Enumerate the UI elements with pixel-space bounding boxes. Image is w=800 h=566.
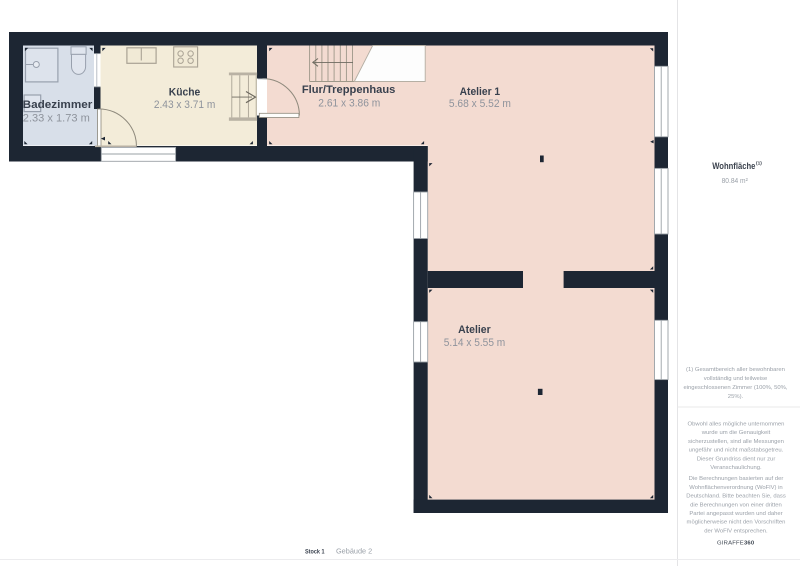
svg-text:vollständig und teilweise: vollständig und teilweise [704,376,768,382]
svg-text:wurde um die Genauigkeit: wurde um die Genauigkeit [701,430,771,436]
svg-text:möglicherweise nicht den Vorsc: möglicherweise nicht den Vorschriften [687,520,786,526]
svg-text:Atelier: Atelier [458,324,491,336]
svg-text:2.43 x 3.71 m: 2.43 x 3.71 m [154,99,216,111]
svg-text:Küche: Küche [169,87,201,99]
svg-text:(1): (1) [756,160,762,166]
svg-text:der WoFlV entsprechen.: der WoFlV entsprechen. [704,528,768,534]
svg-text:eingeschlossenen Zimmer (100%,: eingeschlossenen Zimmer (100%, 50%, [683,385,787,391]
svg-text:Veranschaulichung.: Veranschaulichung. [710,465,762,471]
svg-text:80.84 m²: 80.84 m² [722,176,749,185]
svg-text:25%).: 25%). [728,394,744,400]
svg-text:Atelier 1: Atelier 1 [460,86,501,98]
svg-text:(1) Gesamtbereich aller bewohn: (1) Gesamtbereich aller bewohnbaren [686,367,785,373]
svg-text:sicherzustellen, sind alle Mes: sicherzustellen, sind alle Messungen [688,439,784,445]
svg-text:Die Berechnungen basierten auf: Die Berechnungen basierten auf der [689,476,784,482]
svg-text:5.14 x 5.55 m: 5.14 x 5.55 m [444,337,506,349]
svg-text:Wohnflächenverordnung (WoFlV): Wohnflächenverordnung (WoFlV) in [689,485,782,491]
svg-text:GIRAFFE360: GIRAFFE360 [717,540,755,546]
svg-text:2.33 x 1.73 m: 2.33 x 1.73 m [23,112,90,124]
svg-text:Flur/Treppenhaus: Flur/Treppenhaus [302,84,396,96]
svg-text:5.68 x 5.52 m: 5.68 x 5.52 m [449,98,511,110]
svg-text:Gebäude 2: Gebäude 2 [336,549,372,556]
svg-text:2.61 x 3.86 m: 2.61 x 3.86 m [318,97,380,109]
svg-text:Wohnfläche: Wohnfläche [712,161,755,172]
svg-text:die Berechnungen von einer dri: die Berechnungen von einer dritten [690,502,782,508]
svg-text:Obwohl alles mögliche unternom: Obwohl alles mögliche unternommen [688,422,785,428]
svg-text:Badezimmer: Badezimmer [23,99,93,111]
svg-text:Dieser Grundriss dient nur zur: Dieser Grundriss dient nur zur [697,456,776,462]
svg-text:ungefähr und nicht maßstabsget: ungefähr und nicht maßstabsgetreu. [689,448,784,454]
svg-text:Deutschland. Bitte beachten Si: Deutschland. Bitte beachten Sie, dass [686,494,786,500]
svg-text:Stock 1: Stock 1 [305,549,325,556]
svg-text:Partei angepasst wurden und da: Partei angepasst wurden und daher [689,511,782,517]
